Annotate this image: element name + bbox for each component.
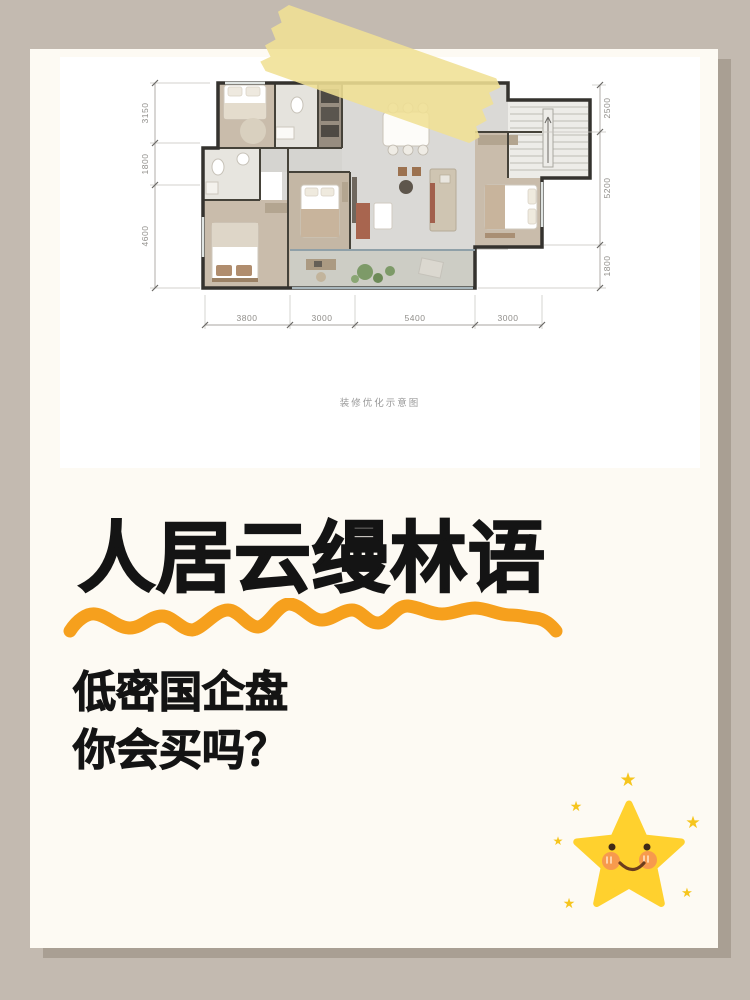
dim-label-bottom-1: 3000 <box>312 313 333 323</box>
smiley-star-icon: ★ ★ ★ ★ ★ ★ <box>545 768 710 923</box>
sparkle-star-icon: ★ <box>681 886 693 901</box>
floorplan-caption: 装修优化示意图 <box>340 397 421 409</box>
poster-subtitle: 低密国企盘 你会买吗？ <box>73 664 288 780</box>
floorplan-image: 3150 1800 4600 2500 5200 1800 3800 3000 … <box>60 57 700 468</box>
poster-subtitle-line2: 你会买吗？ <box>73 722 288 780</box>
sparkle-star-icon: ★ <box>619 769 636 791</box>
dim-label-right-1: 5200 <box>602 178 612 199</box>
sparkle-star-icon: ★ <box>563 896 576 912</box>
poster-title: 人居云缦林语 <box>78 518 546 601</box>
dim-label-left-1: 1800 <box>140 154 150 175</box>
sparkle-star-icon: ★ <box>570 799 583 815</box>
dim-label-left-0: 3150 <box>140 103 150 124</box>
dim-label-bottom-2: 5400 <box>405 313 426 323</box>
dim-label-left-2: 4600 <box>140 226 150 247</box>
dim-label-right-0: 2500 <box>602 98 612 119</box>
sparkle-star-icon: ★ <box>553 834 564 848</box>
poster-subtitle-line1: 低密国企盘 <box>73 664 288 722</box>
wavy-underline-icon <box>45 598 565 648</box>
poster-page: 3150 1800 4600 2500 5200 1800 3800 3000 … <box>0 0 750 1000</box>
floorplan-panel: 3150 1800 4600 2500 5200 1800 3800 3000 … <box>60 57 700 468</box>
sparkle-star-icon: ★ <box>685 813 700 833</box>
dim-label-right-2: 1800 <box>602 256 612 277</box>
dim-label-bottom-3: 3000 <box>498 313 519 323</box>
dim-label-bottom-0: 3800 <box>237 313 258 323</box>
